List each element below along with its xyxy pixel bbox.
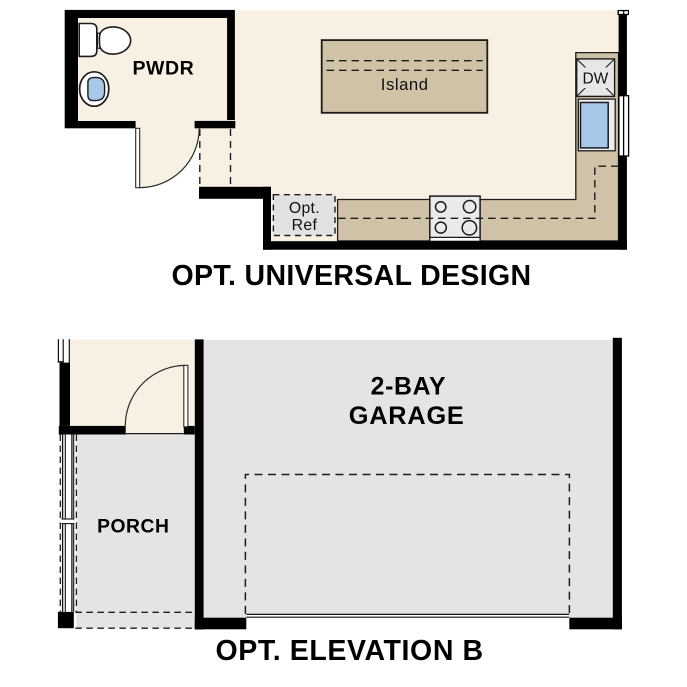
svg-text:Ref: Ref	[292, 217, 318, 234]
svg-text:PORCH: PORCH	[97, 517, 169, 538]
svg-text:PWDR: PWDR	[133, 57, 195, 79]
svg-text:OPT. ELEVATION B: OPT. ELEVATION B	[215, 635, 483, 667]
svg-text:OPT. UNIVERSAL DESIGN: OPT. UNIVERSAL DESIGN	[172, 260, 532, 292]
svg-text:Island: Island	[381, 75, 429, 94]
svg-text:Opt.: Opt.	[289, 200, 320, 217]
svg-text:DW: DW	[582, 71, 608, 88]
svg-text:GARAGE: GARAGE	[349, 402, 465, 430]
svg-text:2-BAY: 2-BAY	[371, 374, 447, 401]
